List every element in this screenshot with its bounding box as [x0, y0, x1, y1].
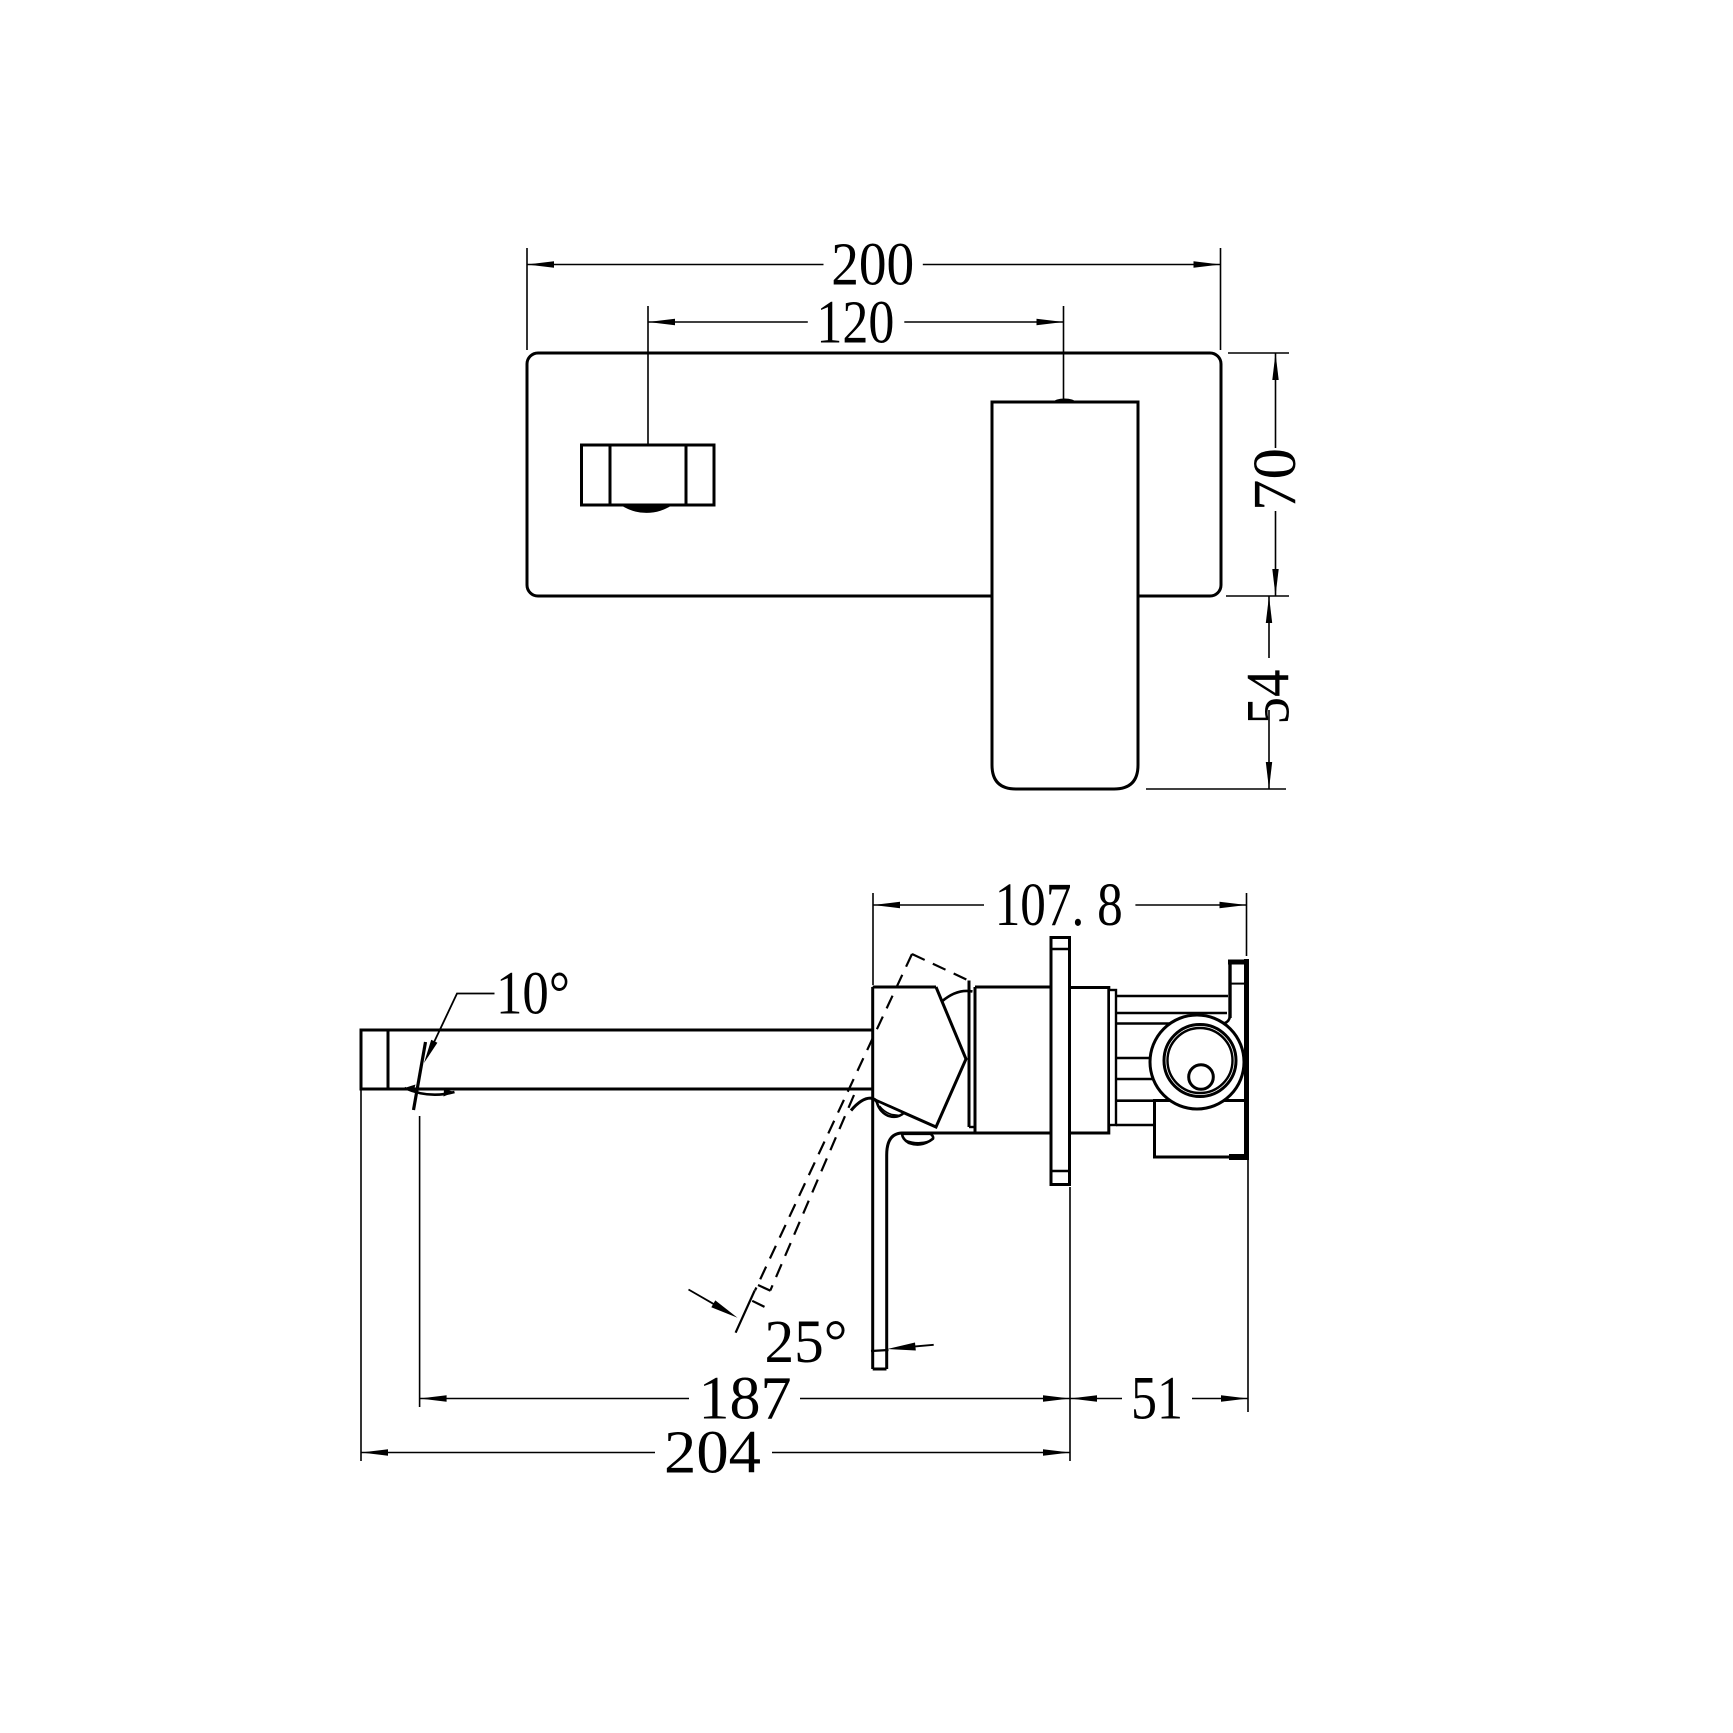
svg-text:120: 120 — [816, 290, 894, 357]
svg-text:51: 51 — [1131, 1366, 1183, 1433]
svg-text:204: 204 — [664, 1420, 761, 1487]
svg-text:70: 70 — [1242, 448, 1309, 511]
svg-text:200: 200 — [831, 232, 914, 299]
svg-text:54: 54 — [1236, 670, 1303, 725]
svg-text:107. 8: 107. 8 — [995, 872, 1123, 939]
svg-text:10°: 10° — [496, 961, 570, 1028]
